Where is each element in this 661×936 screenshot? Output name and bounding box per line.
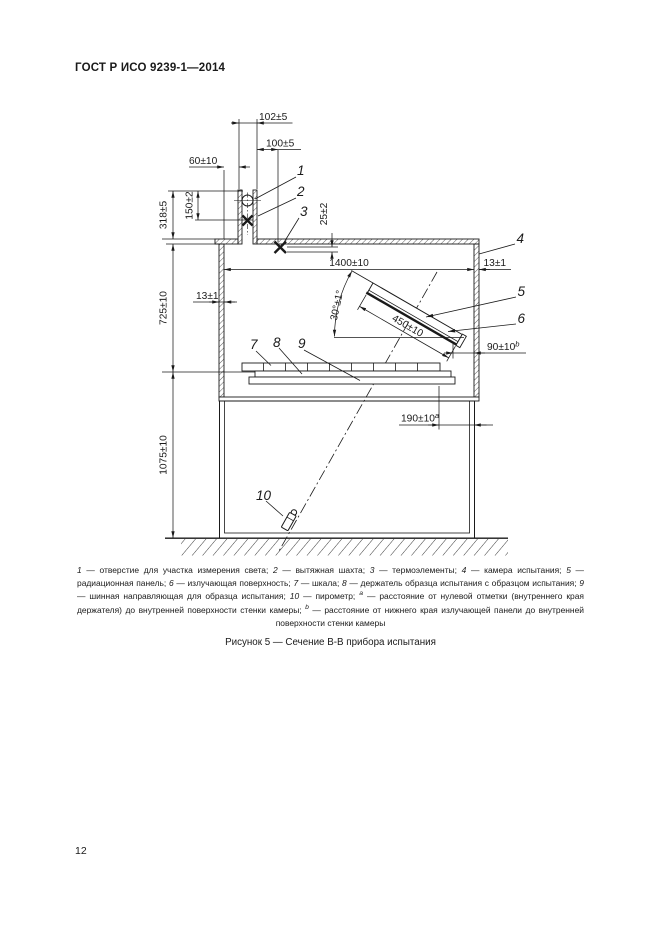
legend-text: — держатель образца испытания с образцом… (347, 578, 580, 588)
callout-10: 10 (256, 488, 272, 503)
legend-text: — шинная направляющая для образца испыта… (77, 591, 290, 601)
legend-marker: 10 (290, 591, 299, 601)
pyrometer (281, 508, 298, 531)
dim-label-right-wall: 13±1 (484, 258, 507, 269)
page-number: 12 (75, 845, 87, 857)
specimen-holder (255, 371, 451, 377)
callout-5: 5 (518, 284, 526, 299)
callout-2: 2 (296, 184, 305, 199)
dim-label-chamber-width: 1400±10 (329, 258, 369, 269)
dim-label-stand-height: 1075±10 (159, 435, 170, 475)
ground-hatch (181, 539, 508, 556)
callout-1: 1 (297, 163, 305, 178)
exhaust-shaft (238, 190, 242, 244)
legend-text: — расстояние от нижнего края излучающей … (276, 605, 584, 628)
stand (220, 401, 475, 538)
dim-label-chamber-height: 725±10 (159, 291, 170, 325)
legend-text: — пирометр; (299, 591, 359, 601)
dim-label-wall-to-shaft: 60±10 (189, 156, 218, 167)
dim-label-thermo-depth: 150±2 (185, 191, 196, 220)
figure-legend: 1 — отверстие для участка измерения свет… (77, 564, 584, 630)
callout-numbers: 1 2 3 4 5 6 7 8 9 10 (250, 163, 526, 503)
guide-rail (249, 377, 455, 384)
callout-8: 8 (273, 335, 281, 350)
ground (165, 538, 508, 555)
callout-7: 7 (250, 337, 258, 352)
test-apparatus-drawing: 450±10 30°±1° (0, 0, 661, 570)
legend-text: — шкала; (298, 578, 342, 588)
radiant-panel: 450±10 (336, 270, 466, 364)
dim-label-panel-to-wall: 90±10b (487, 340, 520, 354)
dim-label-panel-angle: 30°±1° (329, 289, 346, 321)
callout-6: 6 (518, 311, 526, 326)
callout-3: 3 (300, 204, 308, 219)
legend-text: — вытяжная шахта; (278, 565, 370, 575)
dim-label-shaft-height: 318±5 (159, 201, 170, 230)
specimen-assembly (242, 363, 455, 384)
figure-caption: Рисунок 5 — Сечение В-В прибора испытани… (0, 637, 661, 648)
callout-4: 4 (517, 231, 525, 246)
dimension-lines (162, 119, 526, 538)
legend-text: — излучающая поверхность; (174, 578, 294, 588)
dim-label-thermo-below-ceiling: 25±2 (319, 202, 330, 225)
legend-text: — термоэлементы; (374, 565, 461, 575)
figure-diagram: 450±10 30°±1° (0, 0, 661, 570)
dim-label-left-wall: 13±1 (196, 291, 219, 302)
dim-label-zero-to-wall: 190±10a (401, 411, 439, 425)
document-page: ГОСТ Р ИСО 9239-1—2014 (0, 0, 661, 936)
legend-marker: 9 (579, 578, 584, 588)
dim-label-shaft-to-thermocouple: 100±5 (266, 139, 295, 150)
callout-9: 9 (298, 336, 306, 351)
chamber-floor (219, 397, 479, 401)
legend-text: — камера испытания; (466, 565, 566, 575)
legend-text: — отверстие для участка измерения света; (82, 565, 273, 575)
dim-label-shaft-width: 102±5 (259, 112, 288, 123)
